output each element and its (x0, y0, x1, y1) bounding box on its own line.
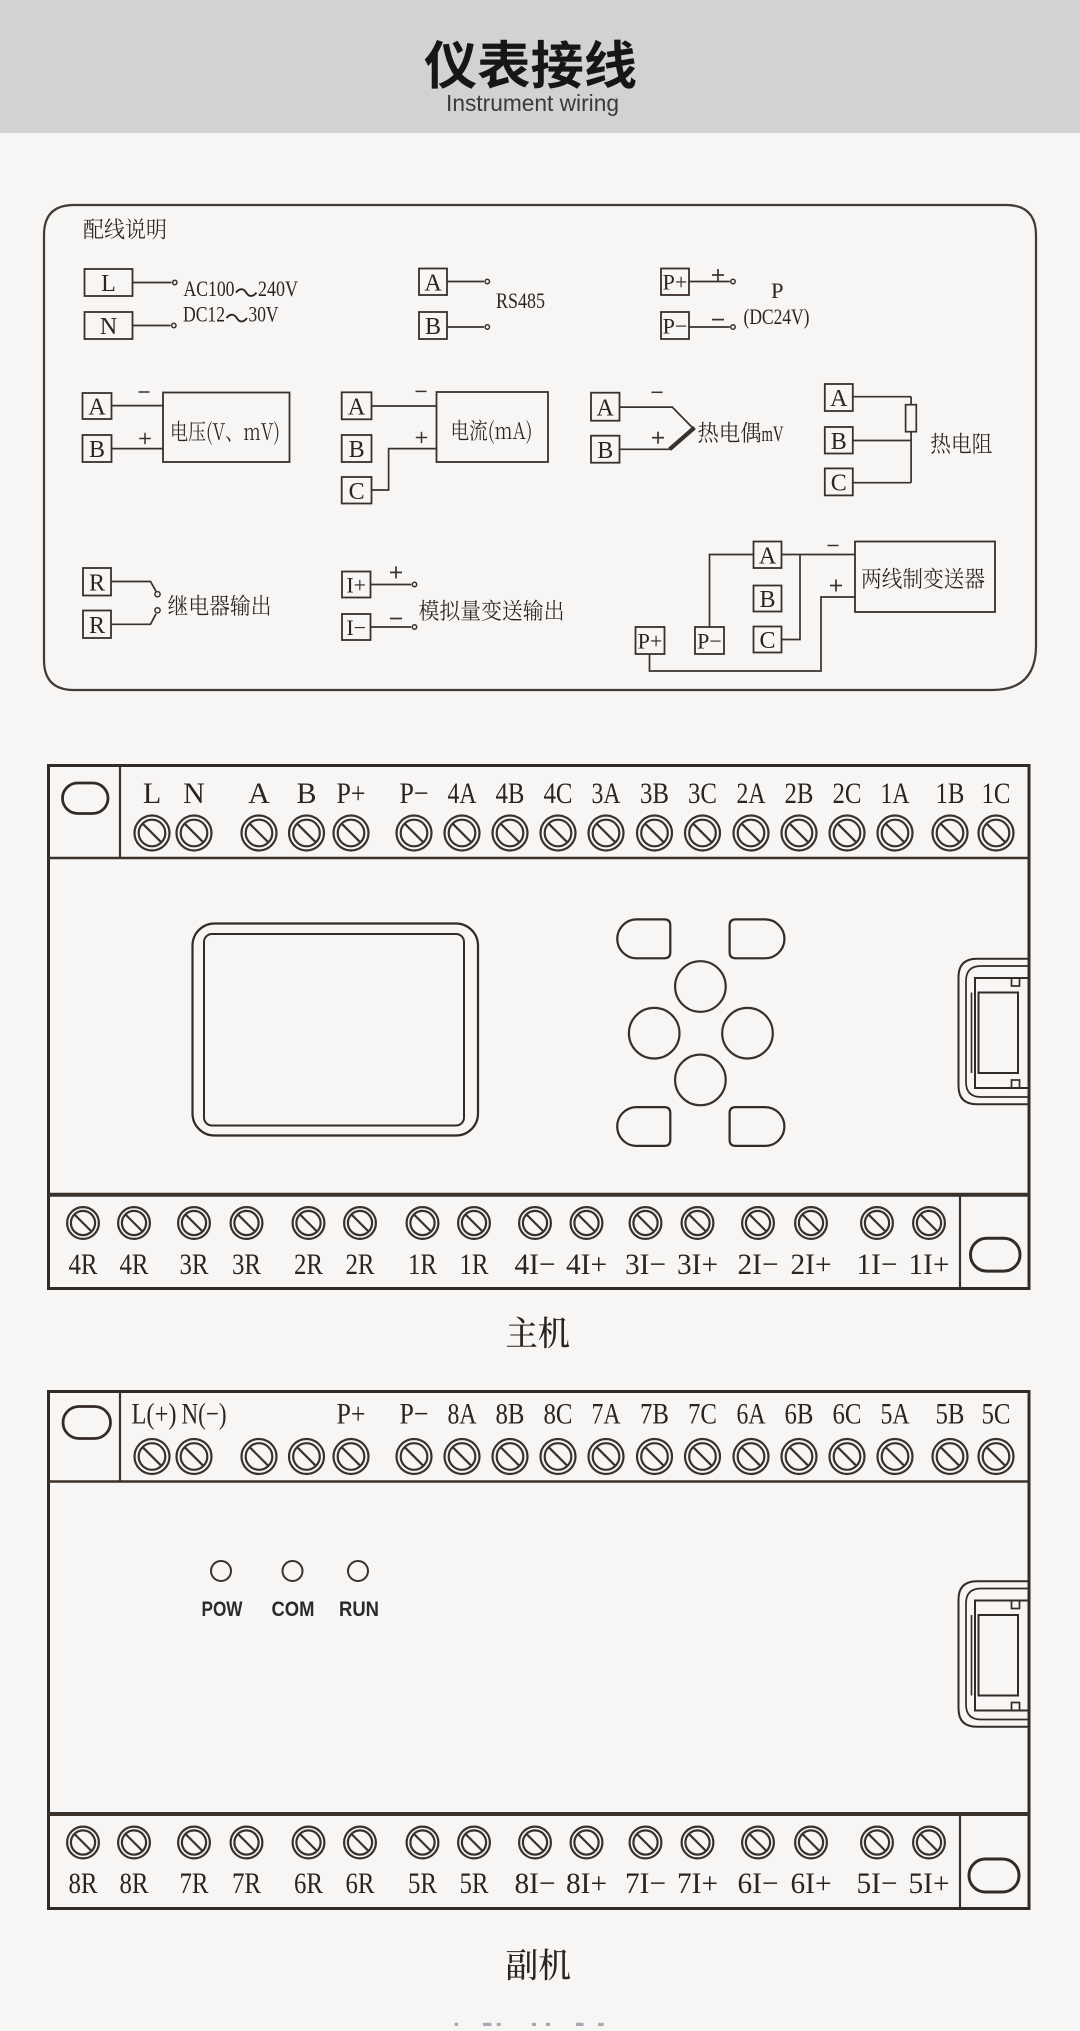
svg-text:8C: 8C (544, 1398, 573, 1431)
svg-text:4R: 4R (120, 1248, 149, 1281)
svg-text:4B: 4B (496, 777, 525, 810)
svg-text:6A: 6A (737, 1398, 766, 1431)
svg-text:4I−: 4I− (515, 1248, 556, 1281)
svg-text:RUN: RUN (339, 1598, 379, 1621)
svg-text:R: R (89, 570, 105, 596)
svg-text:1I−: 1I− (857, 1248, 898, 1281)
svg-text:6I−: 6I− (738, 1867, 779, 1900)
svg-text:5R: 5R (460, 1867, 489, 1900)
svg-text:2R: 2R (294, 1248, 323, 1281)
svg-text:4I+: 4I+ (566, 1248, 607, 1281)
svg-text:B: B (831, 429, 847, 455)
svg-text:I−: I− (346, 615, 366, 640)
svg-text:7B: 7B (640, 1398, 669, 1431)
svg-text:A: A (424, 270, 442, 296)
svg-text:(DC24V): (DC24V) (744, 304, 810, 329)
svg-text:8A: 8A (448, 1398, 477, 1431)
svg-text:3A: 3A (592, 777, 621, 810)
svg-text:A: A (830, 386, 848, 412)
svg-text:1R: 1R (408, 1248, 437, 1281)
svg-text:1B: 1B (936, 777, 965, 810)
svg-text:6C: 6C (833, 1398, 862, 1431)
svg-text:R: R (89, 613, 105, 639)
svg-text:AC100: AC100 (184, 276, 235, 301)
svg-text:3R: 3R (180, 1248, 209, 1281)
svg-text:1A: 1A (881, 777, 910, 810)
svg-text:L: L (143, 777, 161, 810)
svg-text:1I+: 1I+ (909, 1248, 950, 1281)
svg-text:240V: 240V (258, 276, 298, 301)
svg-text:7R: 7R (232, 1867, 261, 1900)
svg-text:2C: 2C (833, 777, 862, 810)
svg-text:7A: 7A (592, 1398, 621, 1431)
svg-text:7I−: 7I− (625, 1867, 666, 1900)
svg-text:2I−: 2I− (738, 1248, 779, 1281)
svg-text:4R: 4R (69, 1248, 98, 1281)
svg-text:2B: 2B (785, 777, 814, 810)
svg-text:7C: 7C (688, 1398, 717, 1431)
svg-text:C: C (349, 479, 365, 505)
svg-text:N(−): N(−) (182, 1398, 227, 1431)
svg-text:B: B (425, 314, 441, 340)
svg-text:I+: I+ (346, 572, 366, 597)
svg-text:5C: 5C (982, 1398, 1011, 1431)
svg-text:5I−: 5I− (857, 1867, 898, 1900)
svg-text:2A: 2A (737, 777, 766, 810)
svg-text:P−: P− (400, 1398, 429, 1431)
svg-text:8I+: 8I+ (566, 1867, 607, 1900)
svg-text:7R: 7R (180, 1867, 209, 1900)
svg-text:B: B (597, 438, 613, 464)
svg-text:N: N (100, 314, 117, 340)
svg-text:5A: 5A (881, 1398, 910, 1431)
svg-text:1R: 1R (460, 1248, 489, 1281)
svg-text:3I−: 3I− (625, 1248, 666, 1281)
svg-text:C: C (831, 471, 847, 497)
svg-text:8R: 8R (69, 1867, 98, 1900)
svg-text:P+: P+ (663, 270, 688, 295)
svg-text:L(+): L(+) (132, 1398, 177, 1431)
svg-text:6R: 6R (346, 1867, 375, 1900)
svg-text:5B: 5B (936, 1398, 965, 1431)
svg-text:3B: 3B (640, 777, 669, 810)
svg-text:B: B (349, 437, 365, 463)
svg-text:A: A (597, 395, 615, 421)
svg-text:2I+: 2I+ (791, 1248, 832, 1281)
svg-text:P: P (771, 278, 784, 303)
svg-text:mV: mV (762, 421, 784, 446)
svg-text:A: A (88, 395, 106, 421)
svg-text:L: L (101, 271, 116, 297)
svg-text:B: B (759, 587, 775, 613)
svg-text:3R: 3R (232, 1248, 261, 1281)
svg-text:3C: 3C (688, 777, 717, 810)
svg-text:A: A (248, 777, 270, 810)
svg-text:5R: 5R (408, 1867, 437, 1900)
svg-text:P+: P+ (337, 1398, 366, 1431)
svg-text:B: B (296, 777, 316, 810)
svg-text:4C: 4C (544, 777, 573, 810)
svg-text:DC12: DC12 (183, 302, 225, 327)
svg-text:P+: P+ (337, 777, 366, 810)
svg-text:P+: P+ (638, 628, 663, 653)
svg-text:3I+: 3I+ (677, 1248, 718, 1281)
svg-text:2R: 2R (346, 1248, 375, 1281)
svg-text:N: N (183, 777, 205, 810)
svg-text:6B: 6B (785, 1398, 814, 1431)
svg-text:5I+: 5I+ (909, 1867, 950, 1900)
svg-text:Instrument wiring: Instrument wiring (446, 90, 619, 116)
svg-text:POW: POW (202, 1598, 243, 1621)
svg-text:COM: COM (272, 1598, 315, 1621)
svg-text:A: A (759, 543, 777, 569)
svg-text:A: A (348, 394, 366, 420)
svg-text:8B: 8B (496, 1398, 525, 1431)
svg-text:B: B (89, 437, 105, 463)
svg-text:RS485: RS485 (496, 288, 545, 313)
svg-text:C: C (759, 628, 775, 654)
svg-text:6I+: 6I+ (791, 1867, 832, 1900)
svg-text:1C: 1C (982, 777, 1011, 810)
svg-text:P−: P− (697, 628, 722, 653)
svg-text:8I−: 8I− (515, 1867, 556, 1900)
svg-text:8R: 8R (120, 1867, 149, 1900)
svg-text:30V: 30V (249, 302, 279, 327)
svg-text:6R: 6R (294, 1867, 323, 1900)
svg-text:P−: P− (400, 777, 429, 810)
svg-text:P−: P− (663, 313, 688, 338)
svg-text:7I+: 7I+ (677, 1867, 718, 1900)
svg-text:4A: 4A (448, 777, 477, 810)
